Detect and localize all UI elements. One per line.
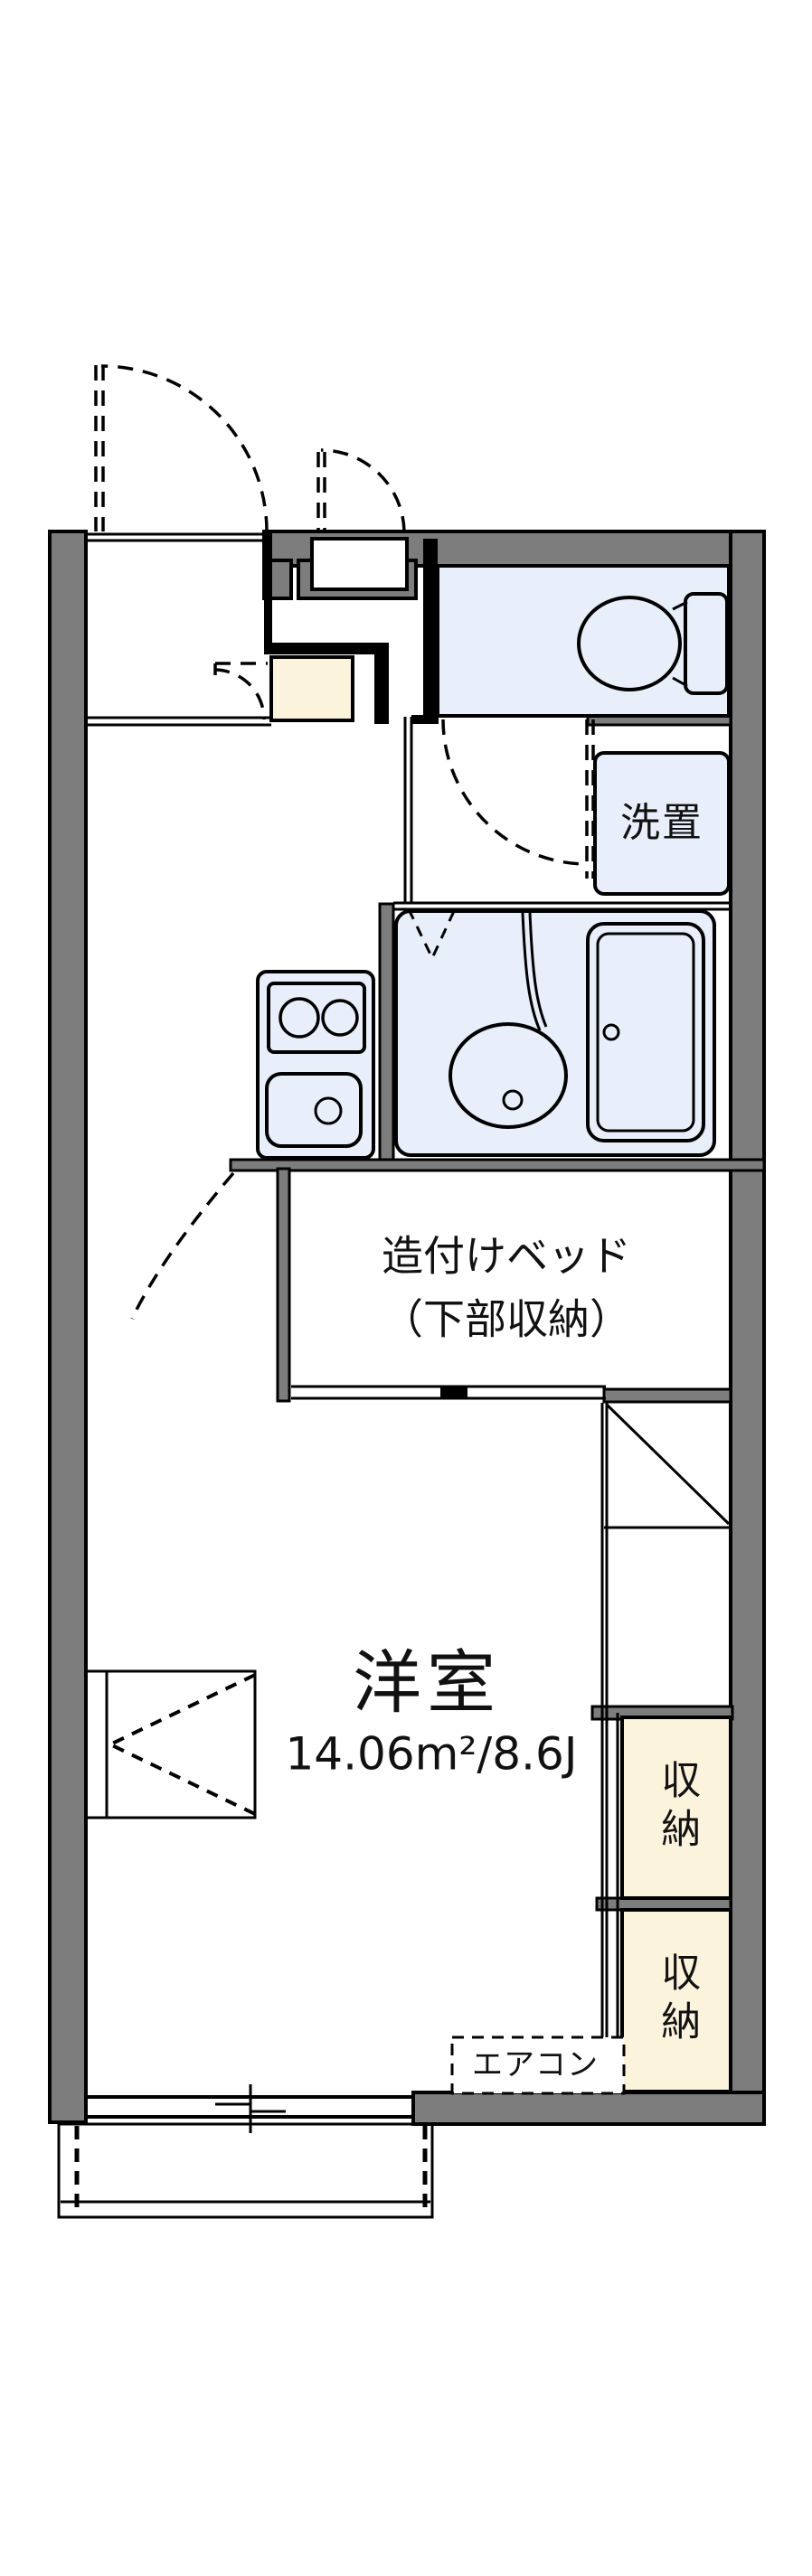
washstand-label: 洗置 [620,802,703,845]
meterbox-door-swing-arc [318,450,404,531]
toilet-door-swing-arc [443,719,593,879]
floor-plan-page: 洗置 造付けベッド （下部収納） 洋室 14.06m²/8.6J 収納 収納 エ… [0,0,812,2576]
wall-bottom [413,2092,764,2124]
toilet-icon [579,594,727,693]
desk-counter-box [86,1671,255,1818]
window-sliding-bottom [86,2084,413,2133]
mid-wall [231,1160,764,1170]
door-swings [96,365,593,1319]
genkan-top-wall [264,643,389,654]
fridge-space-diagonal [607,1405,729,1524]
aircon-label: エアコン [472,2048,599,2082]
bath-left-wall [380,904,393,1161]
kitchen-unit [258,972,373,1158]
toilet-left-wall [423,539,438,718]
toilet-bottom-wall-left [411,715,439,724]
entrance-hall-right-wall [264,531,272,654]
bed-bottom-wall-right [604,1389,731,1402]
genkan-door-swing-arc [214,663,268,719]
room-door-swing-arc [132,1173,233,1319]
storage-upper-label: 収納 [655,1759,698,1857]
balcony [59,2124,432,2217]
bed-door-latch-mark [440,1387,467,1399]
storage-lower-label: 収納 [655,1951,698,2049]
bathroom-unit [396,909,714,1155]
wall-right [731,531,764,2124]
room-name-label: 洋室 [353,1645,501,1721]
genkan-right-wall [374,643,389,724]
built-in-bed-label-line1: 造付けベッド [382,1226,631,1288]
wall-left [50,531,86,2122]
room-area-label: 14.06m²/8.6J [286,1730,578,1780]
meterbox-recess [312,539,407,589]
entrance-door-swing-arc [96,365,267,531]
built-in-bed-label-line2: （下部収納） [382,1289,631,1351]
bed-left-wall [278,1169,289,1401]
genkan-step [271,657,353,720]
entrance-threshold [86,534,264,541]
